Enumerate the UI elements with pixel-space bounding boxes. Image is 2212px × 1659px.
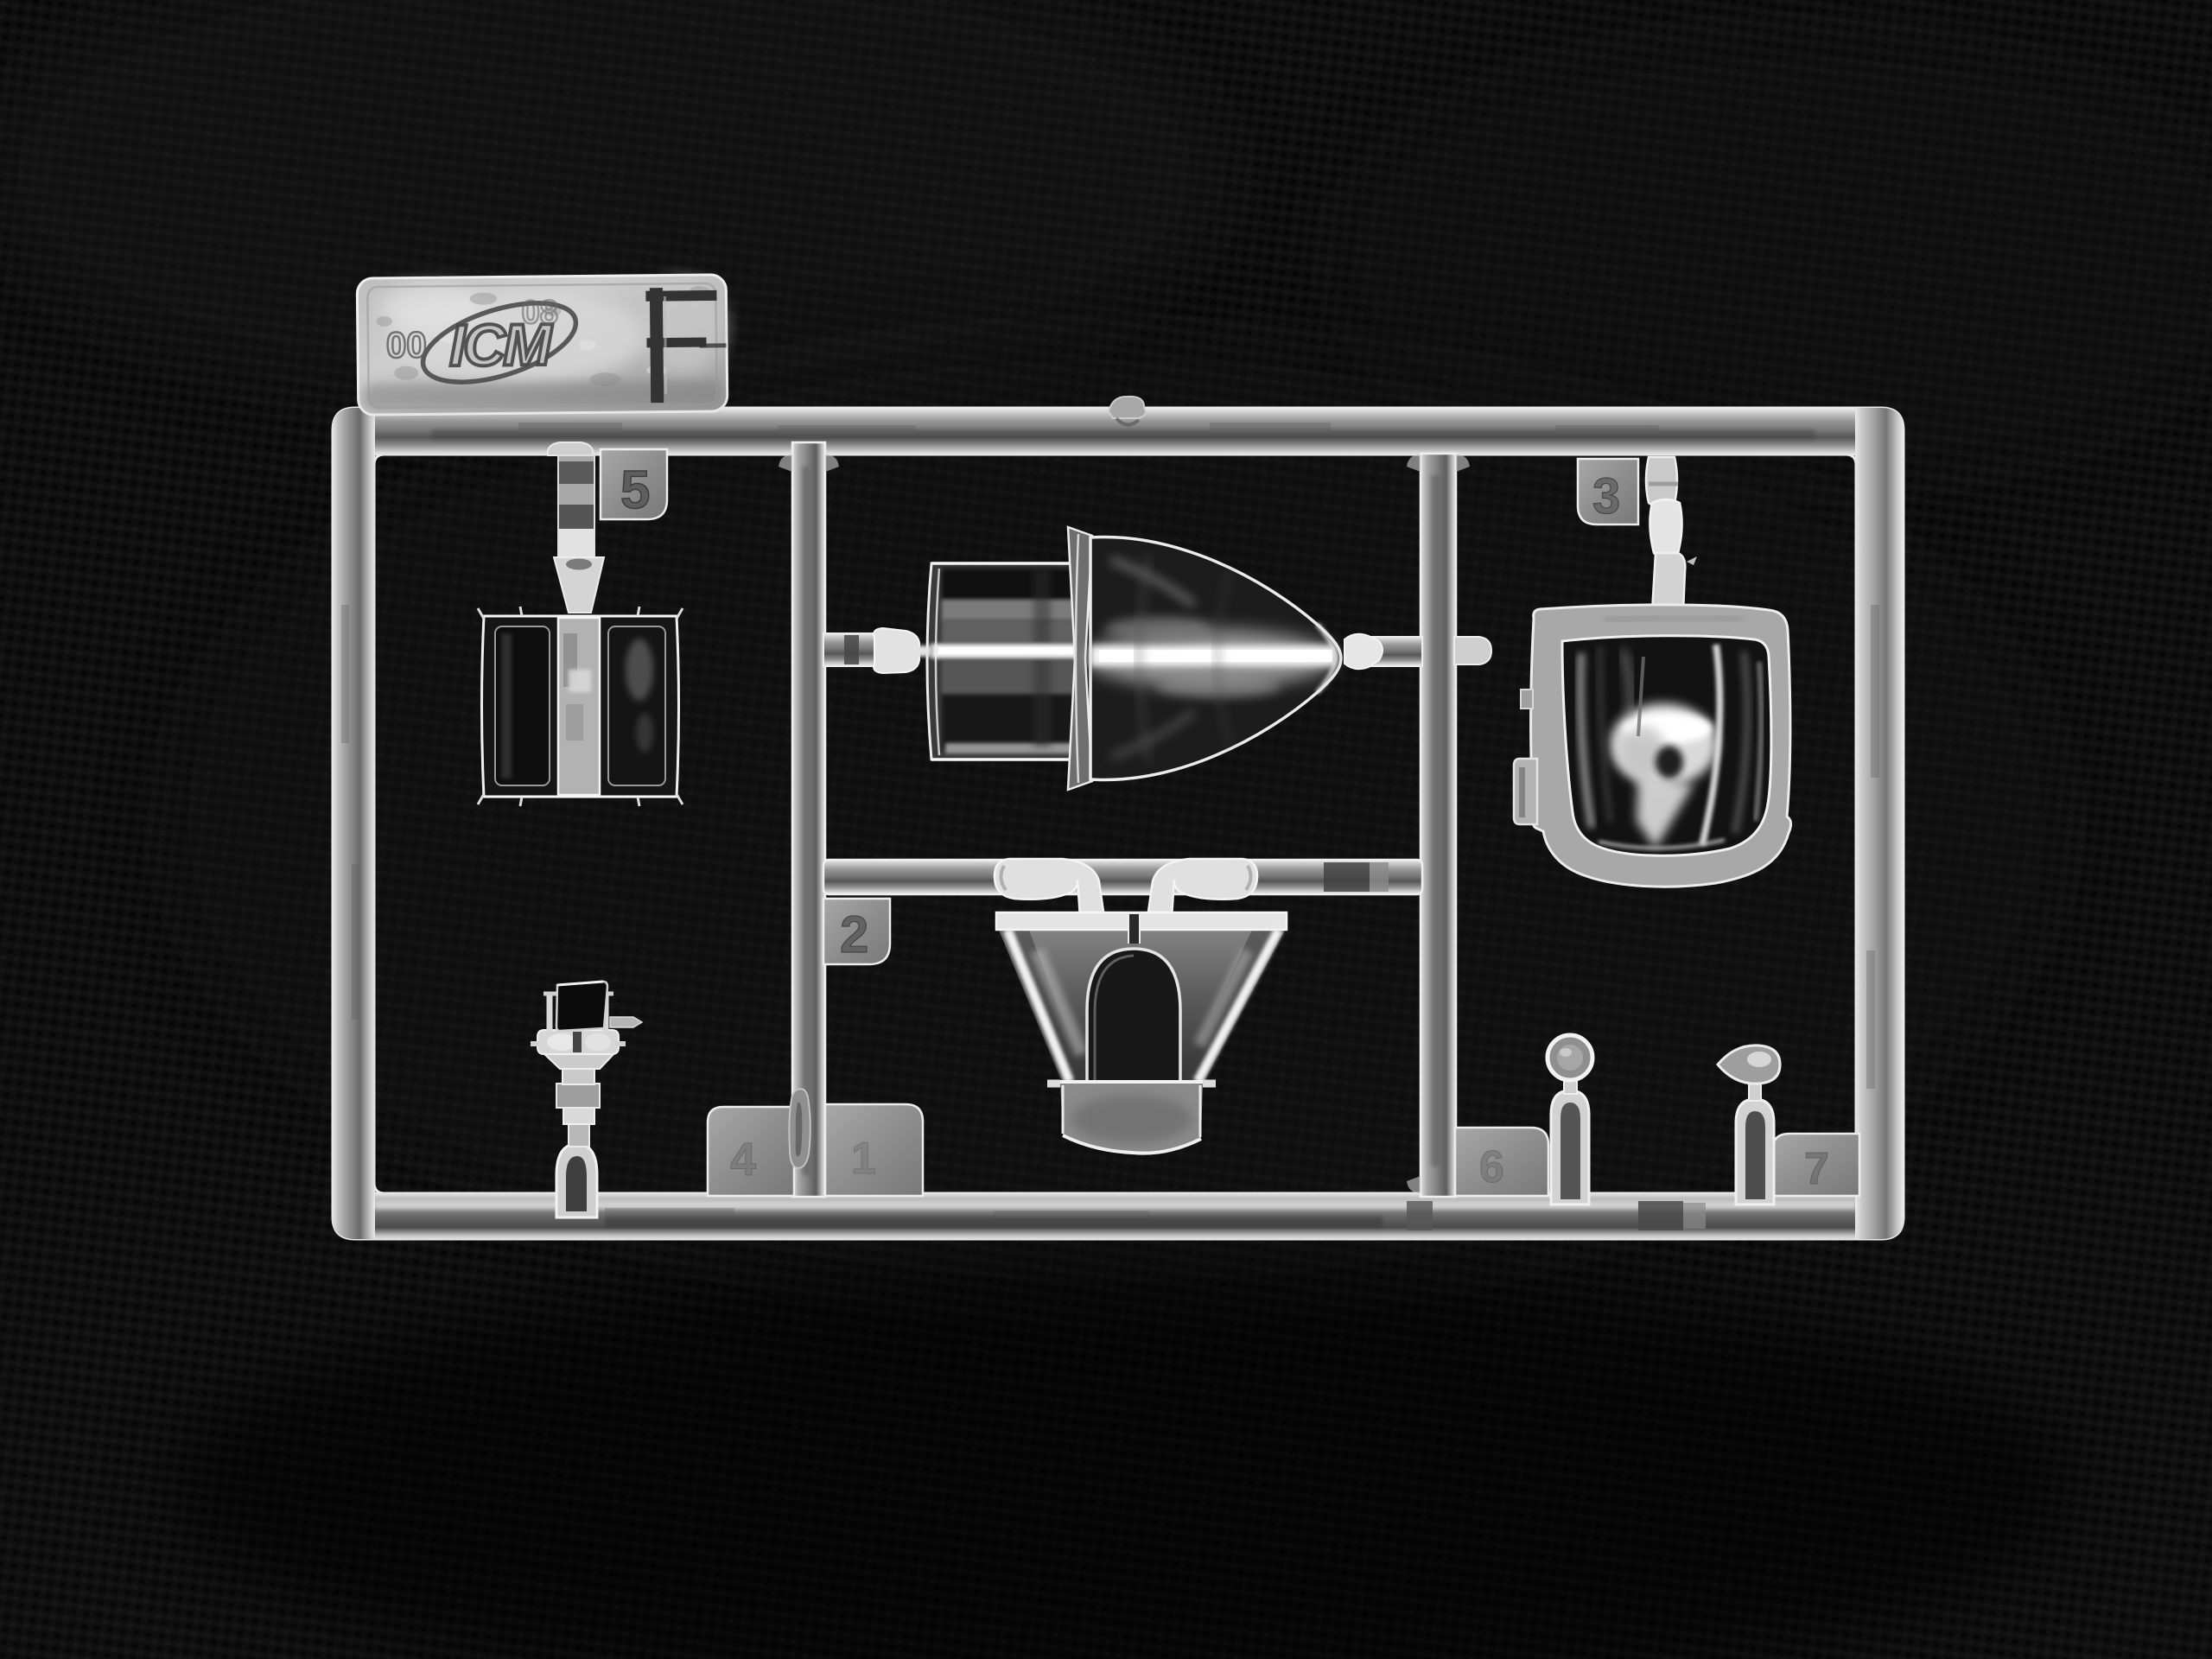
svg-text:7: 7 — [1804, 1144, 1829, 1194]
svg-text:3: 3 — [1592, 468, 1620, 524]
svg-text:5: 5 — [620, 461, 650, 520]
svg-text:1: 1 — [851, 1134, 876, 1184]
svg-text:00: 00 — [386, 324, 427, 365]
svg-text:08: 08 — [521, 295, 558, 331]
svg-text:4: 4 — [730, 1134, 756, 1185]
svg-text:2: 2 — [840, 906, 868, 963]
svg-text:6: 6 — [1479, 1142, 1504, 1192]
